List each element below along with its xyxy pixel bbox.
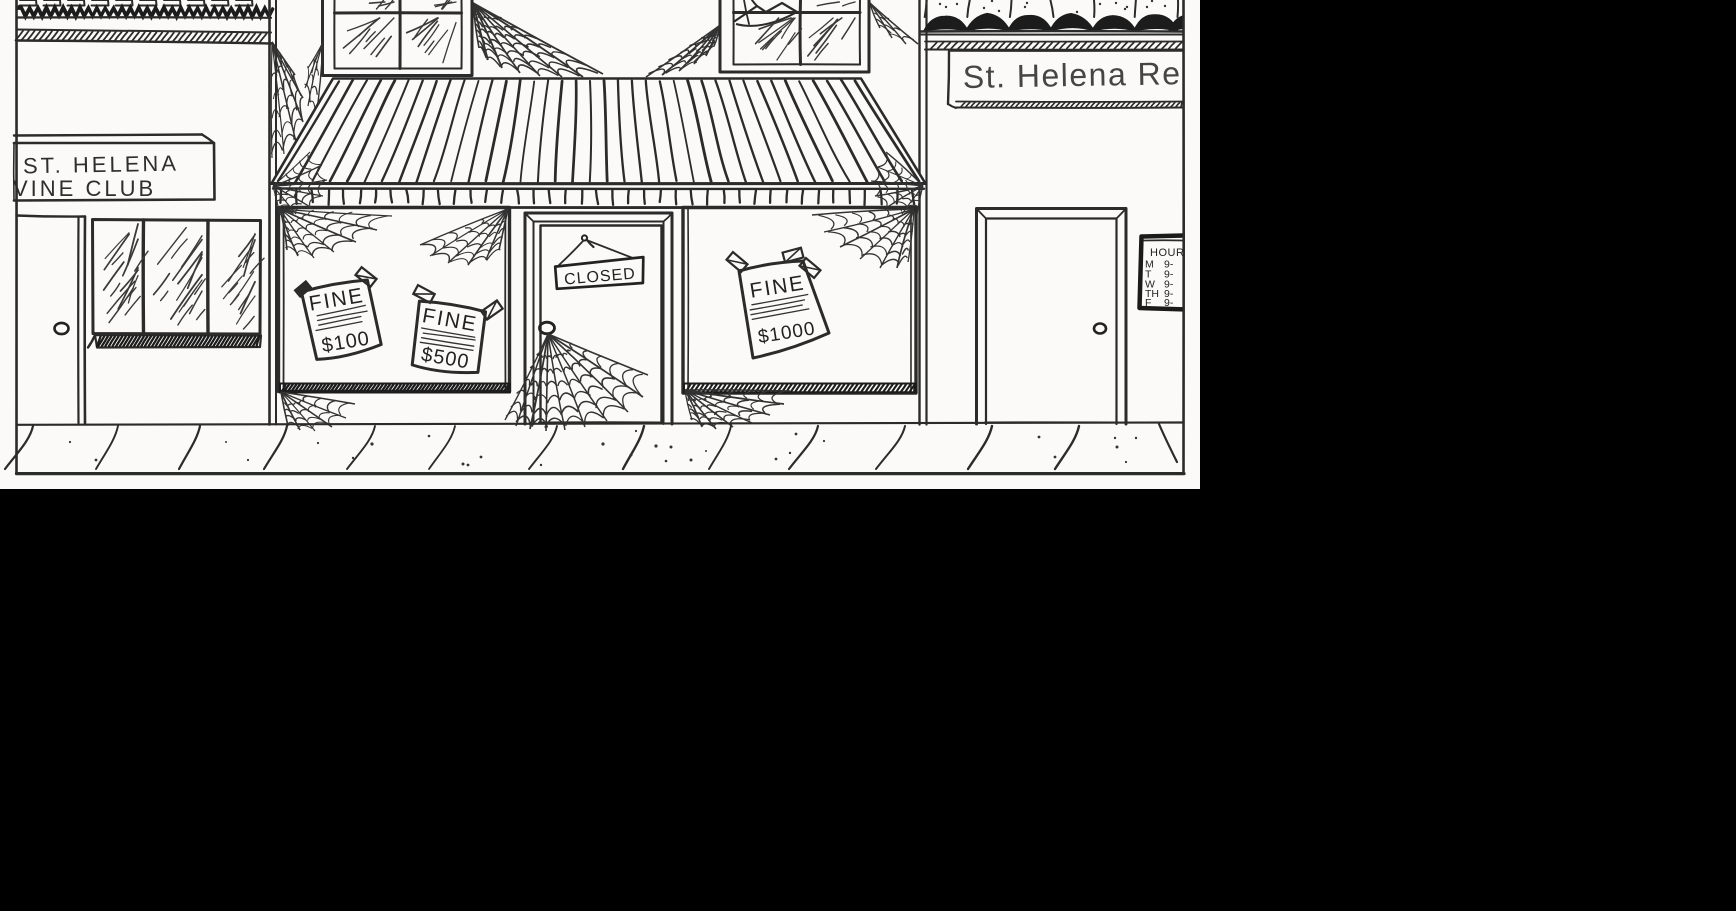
svg-text:VINE CLUB: VINE CLUB (13, 176, 156, 201)
svg-text:F: F (1145, 297, 1151, 309)
svg-text:9-: 9- (1164, 297, 1174, 309)
svg-text:St. Helena Re: St. Helena Re (962, 55, 1181, 95)
svg-text:ST. HELENA: ST. HELENA (23, 151, 179, 179)
